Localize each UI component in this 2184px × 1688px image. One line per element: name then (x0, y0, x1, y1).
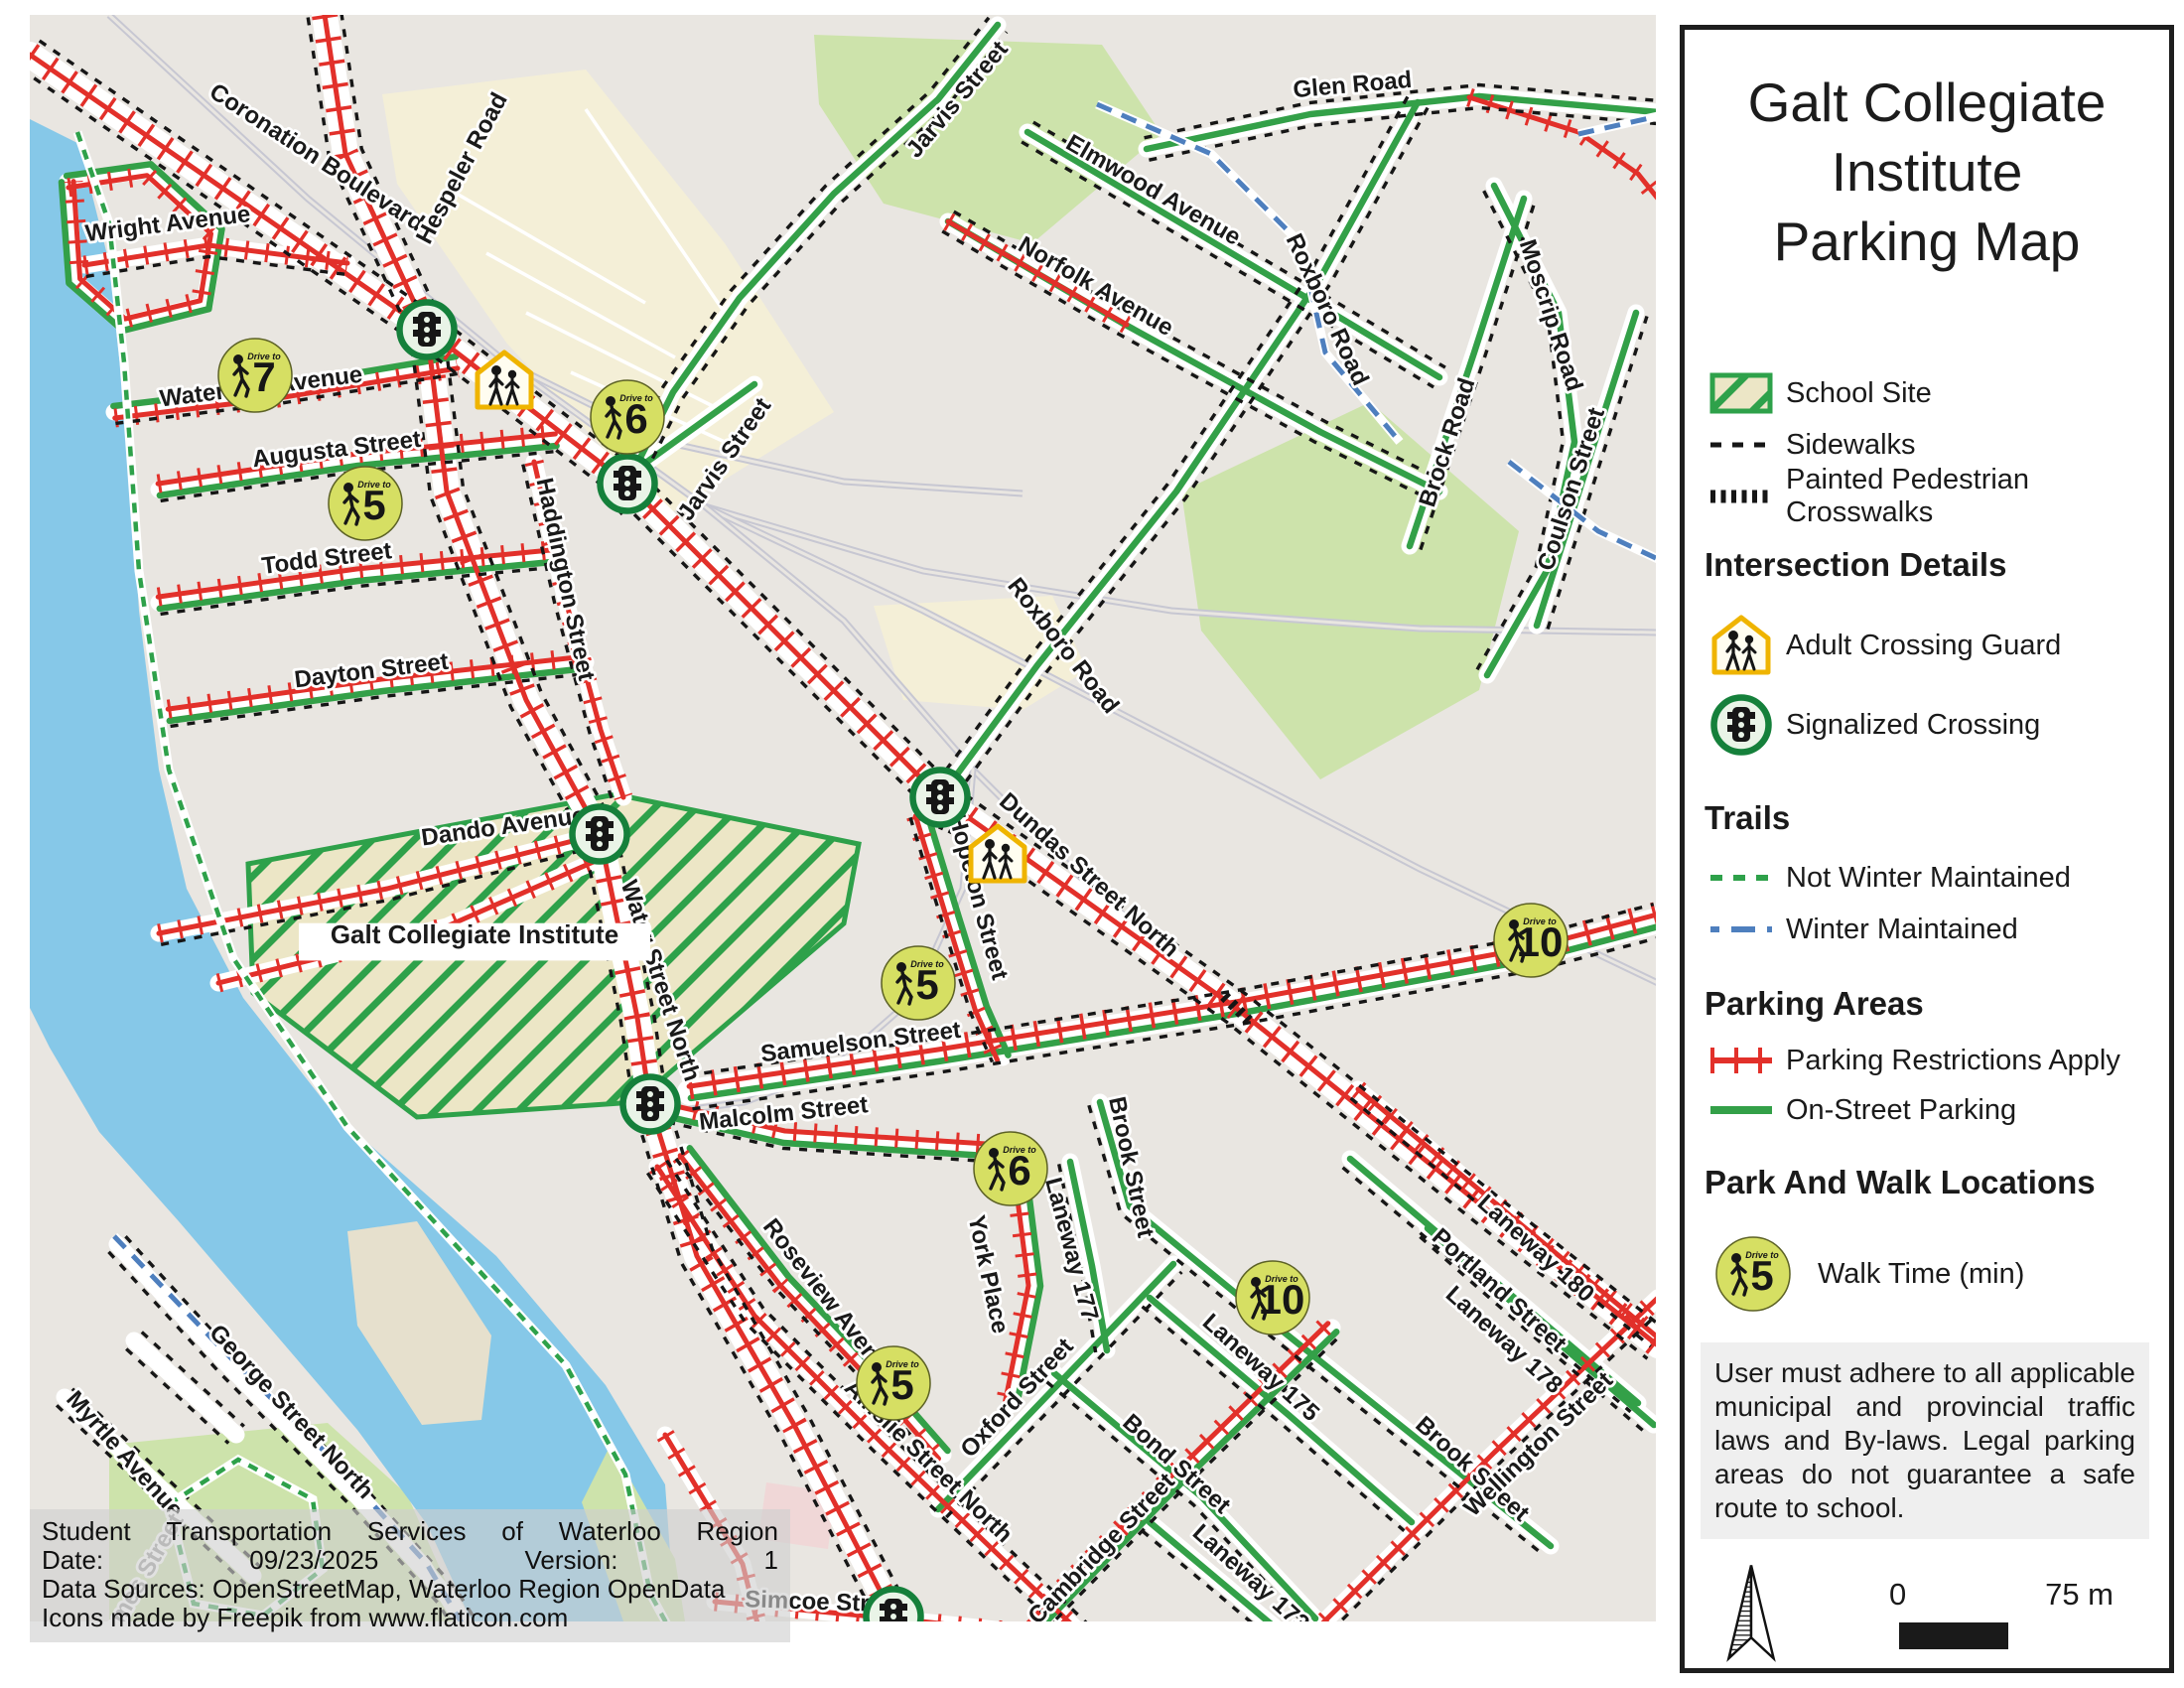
map-canvas: Coronation BoulevardWright AvenueHespele… (30, 15, 1656, 1621)
svg-text:5: 5 (1750, 1252, 1773, 1299)
svg-text:5: 5 (915, 961, 938, 1008)
north-arrow-icon (1708, 1559, 1794, 1668)
adult-crossing-guard-icon (1708, 613, 1774, 678)
legend-item-crosswalks: Painted Pedestrian Crosswalks (1708, 471, 2169, 522)
crosswalks-swatch (1708, 485, 1774, 508)
attribution-line-1: Student Transportation Services of Water… (42, 1517, 778, 1546)
on-street-parking-swatch (1708, 1102, 1774, 1118)
svg-text:6: 6 (624, 395, 647, 442)
walk-time-marker: Drive to10 (1236, 1261, 1309, 1335)
scale-bar: 0 75 m (1889, 1577, 2117, 1649)
signalized-crossing-icon (867, 1590, 921, 1622)
attribution-line-4: Icons made by Freepik from www.flaticon.… (42, 1604, 778, 1632)
heading-intersection-details: Intersection Details (1705, 546, 2006, 584)
walk-time-marker: Drive to6 (974, 1132, 1047, 1205)
svg-text:10: 10 (1259, 1276, 1305, 1323)
signalized-crossing-icon (601, 457, 655, 511)
walk-time-marker: Drive to5 (882, 946, 955, 1020)
attribution-line-2: Date: 09/23/2025 Version: 1 (42, 1546, 778, 1575)
attribution-line-3: Data Sources: OpenStreetMap, Waterloo Re… (42, 1575, 778, 1604)
signalized-crossing-icon (913, 771, 968, 825)
signalized-crossing-icon (400, 303, 455, 357)
heading-park-and-walk: Park And Walk Locations (1705, 1164, 2096, 1201)
legend-item-parking-restrictions: Parking Restrictions Apply (1708, 1035, 2120, 1086)
heading-trails: Trails (1705, 799, 1790, 837)
walk-time-marker: Drive to6 (591, 380, 664, 454)
walk-time-marker: Drive to5 (857, 1346, 930, 1420)
trail-not-winter-swatch (1708, 870, 1774, 886)
legend-item-walk-time: Drive to5 Walk Time (min) (1708, 1226, 2024, 1322)
heading-parking-areas: Parking Areas (1705, 985, 1924, 1023)
scale-bar-rect (1899, 1622, 2008, 1649)
trail-winter-swatch (1708, 921, 1774, 937)
legend-footer: 0 75 m (1708, 1559, 2135, 1668)
scale-zero-label: 0 (1889, 1577, 1906, 1613)
scale-distance-label: 75 m (2045, 1577, 2114, 1613)
school-site-swatch (1708, 371, 1774, 415)
school-name-label: Galt Collegiate Institute (299, 919, 650, 960)
legend-item-signalized-crossing: Signalized Crossing (1708, 690, 2040, 760)
attribution-box: Student Transportation Services of Water… (30, 1509, 790, 1642)
legend-item-crossing-guard: Adult Crossing Guard (1708, 611, 2061, 680)
legend-item-school-site: School Site (1708, 367, 1932, 419)
walk-time-marker: Drive to7 (218, 339, 292, 412)
map-title: Galt Collegiate Institute Parking Map (1685, 68, 2169, 276)
walk-time-marker: Drive to5 (329, 467, 402, 540)
parking-restrictions-swatch (1708, 1046, 1774, 1075)
svg-text:7: 7 (252, 353, 275, 400)
legend-item-on-street-parking: On-Street Parking (1708, 1084, 2016, 1136)
map-panel: Coronation BoulevardWright AvenueHespele… (30, 15, 1656, 1621)
walk-time-marker: Drive to10 (1494, 904, 1568, 977)
signalized-crossing-icon (623, 1077, 678, 1132)
svg-text:5: 5 (362, 482, 385, 528)
svg-text:Galt Collegiate Institute: Galt Collegiate Institute (331, 919, 618, 949)
signalized-crossing-icon (573, 807, 627, 862)
legend-panel: Galt Collegiate Institute Parking Map Sc… (1680, 25, 2174, 1673)
svg-text:10: 10 (1517, 918, 1564, 965)
disclaimer-text: User must adhere to all applicable munic… (1701, 1342, 2149, 1539)
svg-text:6: 6 (1008, 1147, 1030, 1194)
legend-item-trail-winter: Winter Maintained (1708, 904, 2018, 955)
legend-item-trail-not-winter: Not Winter Maintained (1708, 852, 2071, 904)
walk-time-marker-icon: Drive to5 (1708, 1229, 1798, 1319)
svg-text:5: 5 (890, 1361, 913, 1408)
sidewalks-swatch (1708, 435, 1774, 455)
signalized-crossing-icon (1708, 692, 1774, 758)
